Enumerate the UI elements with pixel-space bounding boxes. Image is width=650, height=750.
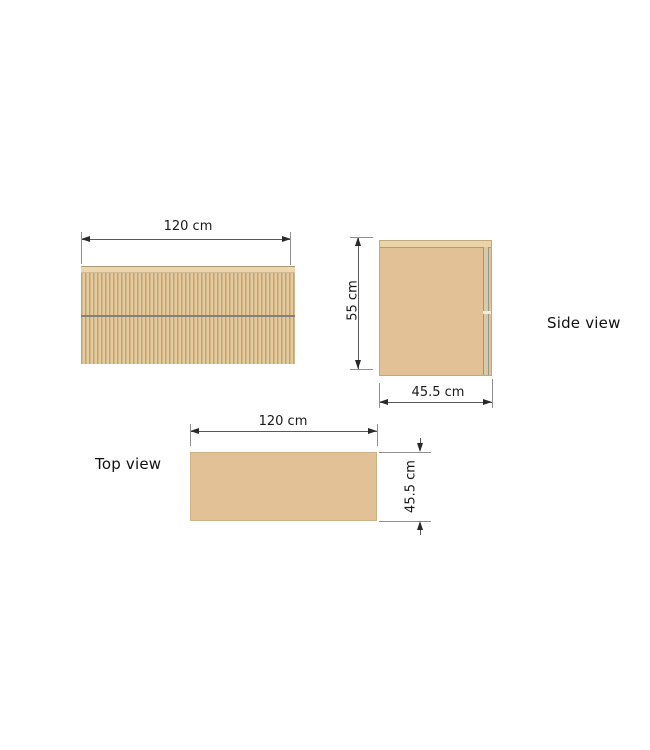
front-cabinet-top-edge xyxy=(81,266,295,273)
side-depth-dimension-label: 45.5 cm xyxy=(398,385,478,400)
dimension-arrow-down-icon xyxy=(355,360,361,369)
side-depth-extension-line-right xyxy=(492,379,493,408)
side-extension-tick-top xyxy=(350,237,373,238)
furniture-dimension-drawing: 120 cm 55 cm 45.5 cm Side view xyxy=(0,0,650,750)
top-depth-extension-line-top xyxy=(379,452,431,453)
top-width-dimension-label: 120 cm xyxy=(243,414,323,429)
dimension-arrow-left-icon xyxy=(379,399,388,405)
dimension-arrow-right-icon xyxy=(368,428,377,434)
side-view-cabinet xyxy=(379,240,492,376)
front-width-dimension-line xyxy=(81,239,291,240)
top-extension-line-right xyxy=(377,424,378,446)
side-depth-extension-line-left xyxy=(379,383,380,408)
side-cabinet-drawer-gap xyxy=(483,311,491,314)
top-view-title: Top view xyxy=(95,456,161,473)
front-extension-line-right xyxy=(290,232,291,265)
top-view-cabinet xyxy=(190,452,377,521)
side-extension-tick-bottom xyxy=(350,369,373,370)
dimension-arrow-right-icon xyxy=(483,399,492,405)
top-depth-extension-line-bottom xyxy=(379,521,431,522)
front-view-cabinet xyxy=(81,266,295,364)
side-view-title: Side view xyxy=(547,315,621,332)
side-height-dimension-line xyxy=(358,237,359,369)
dimension-arrow-up-icon xyxy=(417,521,423,530)
top-extension-line-left xyxy=(190,424,191,446)
dimension-arrow-left-icon xyxy=(81,236,90,242)
dimension-arrow-left-icon xyxy=(190,428,199,434)
dimension-arrow-up-icon xyxy=(355,237,361,246)
front-cabinet-drawer-divider xyxy=(81,315,295,317)
front-width-dimension-label: 120 cm xyxy=(148,219,228,234)
side-cabinet-top-edge xyxy=(380,241,491,248)
side-depth-dimension-line xyxy=(379,402,492,403)
dimension-arrow-down-icon xyxy=(417,443,423,452)
front-extension-line-left xyxy=(81,232,82,264)
top-width-dimension-line xyxy=(190,431,377,432)
top-depth-dimension-label: 45.5 cm xyxy=(404,457,419,517)
